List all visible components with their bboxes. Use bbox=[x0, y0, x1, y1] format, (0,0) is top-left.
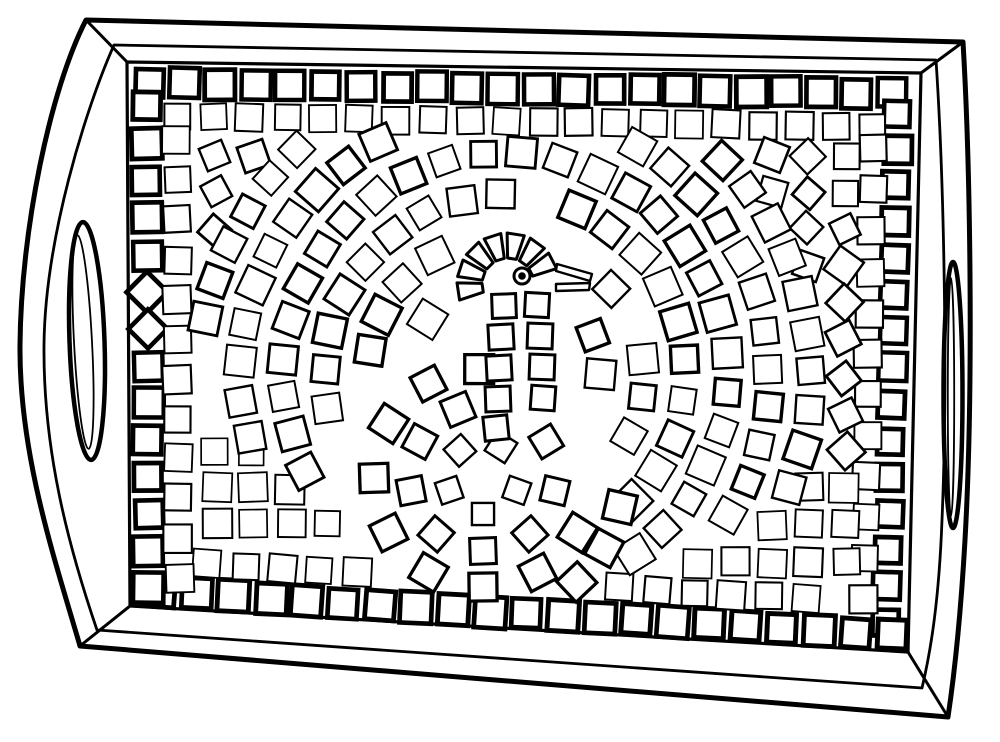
bird-neck-tiles bbox=[483, 292, 556, 441]
bird-eye bbox=[514, 268, 530, 284]
bird-beak bbox=[556, 264, 592, 291]
left-handle bbox=[65, 221, 108, 460]
mosaic-tray-illustration bbox=[0, 0, 1000, 742]
right-handle bbox=[944, 262, 963, 528]
bird-head-fan bbox=[457, 233, 557, 300]
coloring-page bbox=[0, 0, 1000, 742]
